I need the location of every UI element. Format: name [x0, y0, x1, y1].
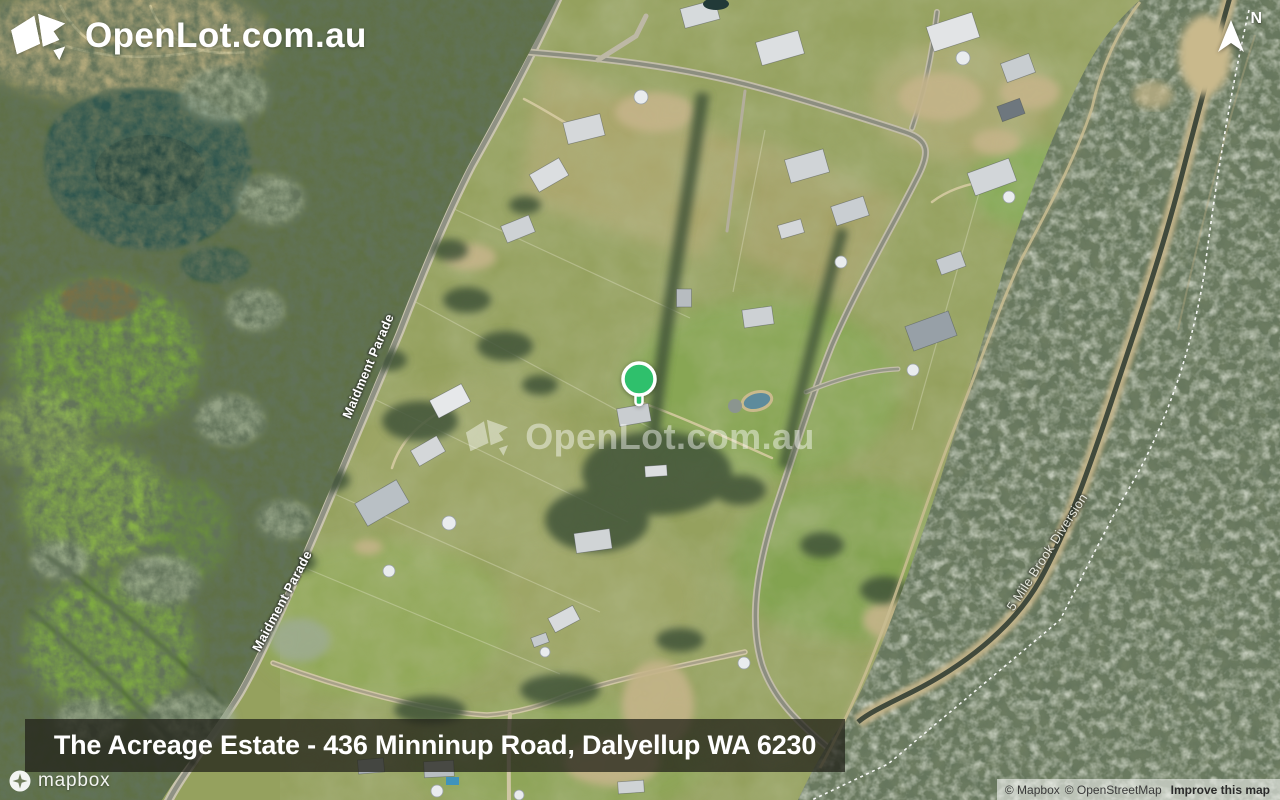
mapbox-logo-icon: [8, 769, 32, 793]
improve-map-link[interactable]: Improve this map: [1171, 783, 1270, 797]
openlot-logo-icon: [10, 11, 72, 61]
map-watermark: OpenLot.com.au: [465, 416, 815, 458]
watermark-text: OpenLot.com.au: [525, 416, 815, 458]
property-marker-pin[interactable]: [616, 360, 662, 410]
openlot-logo-text: OpenLot.com.au: [85, 16, 367, 56]
attribution-mapbox-link[interactable]: © Mapbox: [1005, 783, 1060, 797]
openlot-logo: OpenLot.com.au: [10, 11, 367, 61]
address-caption-bar: The Acreage Estate - 436 Minninup Road, …: [25, 719, 845, 772]
north-arrow-icon: [1216, 18, 1250, 56]
address-caption-text: The Acreage Estate - 436 Minninup Road, …: [54, 730, 816, 761]
mapbox-logo-text: mapbox: [38, 770, 110, 792]
mapbox-logo[interactable]: mapbox: [8, 769, 110, 793]
map-canvas[interactable]: OpenLot.com.au N OpenLot.com.au Maidment…: [0, 0, 1280, 800]
map-attribution: © Mapbox © OpenStreetMap Improve this ma…: [997, 779, 1280, 800]
north-indicator: N: [1214, 8, 1264, 64]
attribution-osm-link[interactable]: © OpenStreetMap: [1065, 783, 1162, 797]
marker-head: [623, 363, 655, 395]
watermark-logo-icon: [465, 417, 513, 457]
north-label: N: [1250, 10, 1262, 28]
